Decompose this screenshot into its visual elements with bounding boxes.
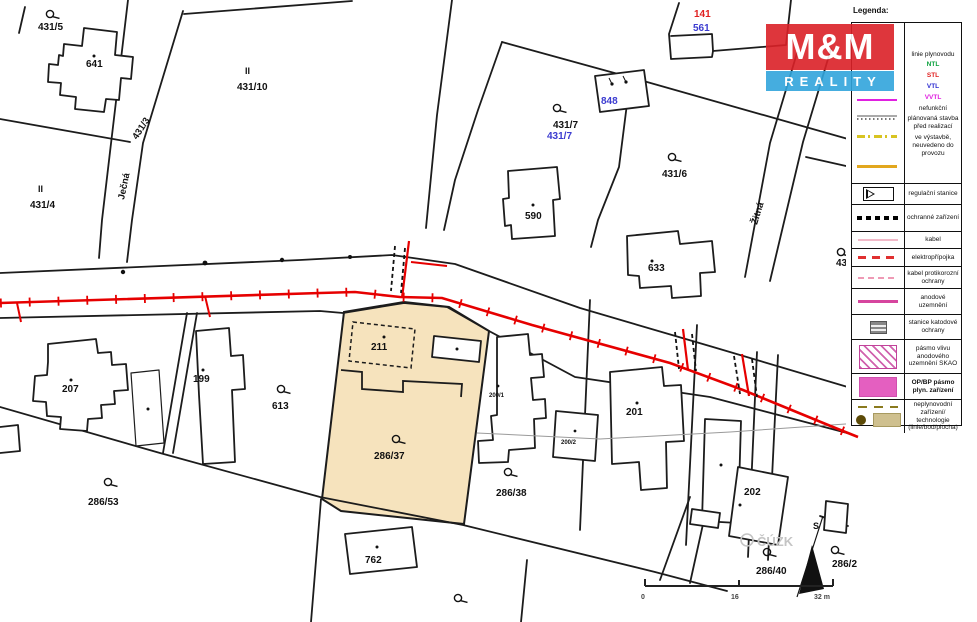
legend-gas-header: linie plynovodu [911, 51, 954, 59]
parcel-symbol [504, 468, 517, 476]
parcel-label: 431/10 [237, 82, 268, 93]
building-762 [345, 527, 417, 574]
skao-zone-swatch [859, 345, 897, 369]
building-label: 202 [744, 487, 761, 498]
parcel-label: 286/38 [496, 488, 527, 499]
anticorrosion-cable-swatch [858, 277, 898, 279]
parcel-label: 431/3 [130, 116, 152, 142]
scale-labels: 0 16 32 m [641, 594, 830, 601]
regulator-station-icon [863, 187, 894, 201]
legend-row-neplynovodni: neplynovodní zařízení/ technologie (lini… [852, 399, 961, 433]
non-gas-line-swatch [858, 406, 898, 409]
legend-label: elektropřípojka [912, 254, 955, 262]
highlighted-parcel-286-37 [322, 302, 489, 524]
parcel-label: 286/37 [374, 451, 405, 462]
nefunkcni-line-swatch [857, 115, 897, 117]
parcel-symbol [277, 385, 290, 393]
cadastral-map-screenshot: 431/5 641 II 431/10 431/3 Ječná II 431/4… [0, 0, 977, 622]
building-label: 590 [525, 211, 542, 222]
legend-row-stanice-katodove: stanice katodové ochrany [852, 314, 961, 339]
parcel-label-red: 141 [694, 9, 711, 20]
cable-line-swatch [858, 239, 898, 241]
parcel-symbol [104, 478, 117, 486]
parcel-label: 431/5 [38, 22, 63, 33]
building-label: 200/1 [489, 393, 505, 399]
legend-row-regulacni-stanice: regulační stanice [852, 183, 961, 204]
parcel-symbol [46, 10, 59, 18]
scale-mid: 16 [731, 594, 739, 601]
building-590 [503, 167, 560, 239]
electric-connection-swatch [858, 256, 898, 259]
legend-label: anodové uzemnění [906, 294, 960, 310]
building-641 [48, 28, 133, 112]
scale-end: 32 m [814, 594, 830, 601]
parcel-symbol [553, 104, 566, 112]
logo-top-text: M&M [766, 24, 894, 70]
legend-label: neplynovodní zařízení/ technologie (lini… [906, 401, 960, 432]
parcel-label: 286/40 [756, 566, 787, 577]
parcel-label: 613 [272, 401, 289, 412]
non-gas-point-swatch [856, 415, 866, 425]
parcel-symbol [763, 548, 776, 556]
legend-row-pasmo-vlivu: pásmo vlivu anodového uzemnění SKAO [852, 339, 961, 373]
building-199 [196, 328, 245, 464]
op-bp-zone-swatch [859, 377, 897, 397]
building-label-blue: 561 [693, 23, 710, 34]
scale-zero: 0 [641, 594, 645, 601]
building-201 [610, 367, 684, 490]
legend-planovana: plánovaná stavba před realizací [906, 115, 960, 131]
building-label: 201 [626, 407, 643, 418]
building-207 [33, 339, 128, 431]
watermark-text: ČÚZK [757, 534, 794, 549]
legend-label: kabel [925, 236, 941, 244]
legend-row-elektropripojka: elektropřípojka [852, 248, 961, 266]
vystavba-line-swatch [857, 165, 897, 168]
legend-label: ochranné zařízení [907, 214, 959, 222]
building-label: 641 [86, 59, 103, 70]
non-gas-area-swatch [873, 413, 901, 427]
legend-vtl: VTL [927, 83, 939, 91]
parcel-symbol [668, 153, 681, 161]
building-label: 633 [648, 263, 665, 274]
building-label: 199 [193, 374, 210, 385]
building-label-blue: 848 [601, 96, 618, 107]
legend-vystavba: ve výstavbě, neuvedeno do provozu [906, 134, 960, 157]
legend-row-op-bp: OP/BP pásmo plyn. zařízení [852, 373, 961, 399]
street-name: Žitná [748, 200, 766, 226]
legend-title: Legenda: [846, 0, 968, 18]
cathodic-station-icon [870, 321, 887, 334]
legend-ntl: NTL [927, 61, 940, 69]
building-label: 207 [62, 384, 79, 395]
planovana-line-swatch [857, 135, 897, 138]
legend-row-kabel-protikorozni: kabel protikorozní ochrany [852, 266, 961, 288]
logo-bottom-text: REALITY [766, 71, 894, 91]
protective-device-swatch [857, 216, 899, 220]
building-bottom-small [690, 509, 720, 528]
anode-ground-swatch [858, 300, 898, 303]
north-arrow: S [797, 516, 824, 597]
legend-row-kabel: kabel [852, 231, 961, 248]
parcel-label: 286/53 [88, 497, 119, 508]
building-label: 211 [371, 342, 388, 353]
legend-row-ochranne-zarizeni: ochranné zařízení [852, 204, 961, 231]
parcel-label: 431/6 [662, 169, 687, 180]
parcel-label: 431/7 [553, 120, 578, 131]
parcel-symbol [454, 594, 467, 602]
north-label: S [813, 521, 819, 531]
building-corner-right [824, 501, 848, 533]
legend-row-anodove-uzemneni: anodové uzemnění [852, 288, 961, 314]
culture-symbol: II [38, 184, 43, 194]
mm-reality-logo: M&M REALITY [766, 24, 894, 91]
building-label: 200/2 [561, 440, 577, 446]
legend-stl: STL [927, 72, 939, 80]
legend-vvtl: VVTL [925, 94, 942, 102]
legend-label: stanice katodové ochrany [906, 319, 960, 335]
legend-label: kabel protikorozní ochrany [906, 270, 960, 286]
parcel-label: 286/2 [832, 559, 857, 570]
parcel-label: 431/4 [30, 200, 55, 211]
culture-symbol: II [245, 66, 250, 76]
legend-label: pásmo vlivu anodového uzemnění SKAO [906, 345, 960, 368]
parcel-label-blue: 431/7 [547, 131, 572, 142]
legend-label: regulační stanice [908, 190, 957, 198]
building-200-2 [553, 411, 598, 461]
vvtl-line-swatch [857, 99, 897, 101]
street-name: Ječná [116, 171, 133, 200]
legend-nefunkcni: nefunkční [919, 105, 947, 113]
building-label: 762 [365, 555, 382, 566]
nefunkcni-dots-swatch [857, 118, 897, 120]
building-633 [627, 231, 715, 298]
parcel-symbol [831, 546, 844, 554]
legend-label: OP/BP pásmo plyn. zařízení [906, 379, 960, 395]
cadastral-map-canvas: 431/5 641 II 431/10 431/3 Ječná II 431/4… [0, 0, 977, 622]
